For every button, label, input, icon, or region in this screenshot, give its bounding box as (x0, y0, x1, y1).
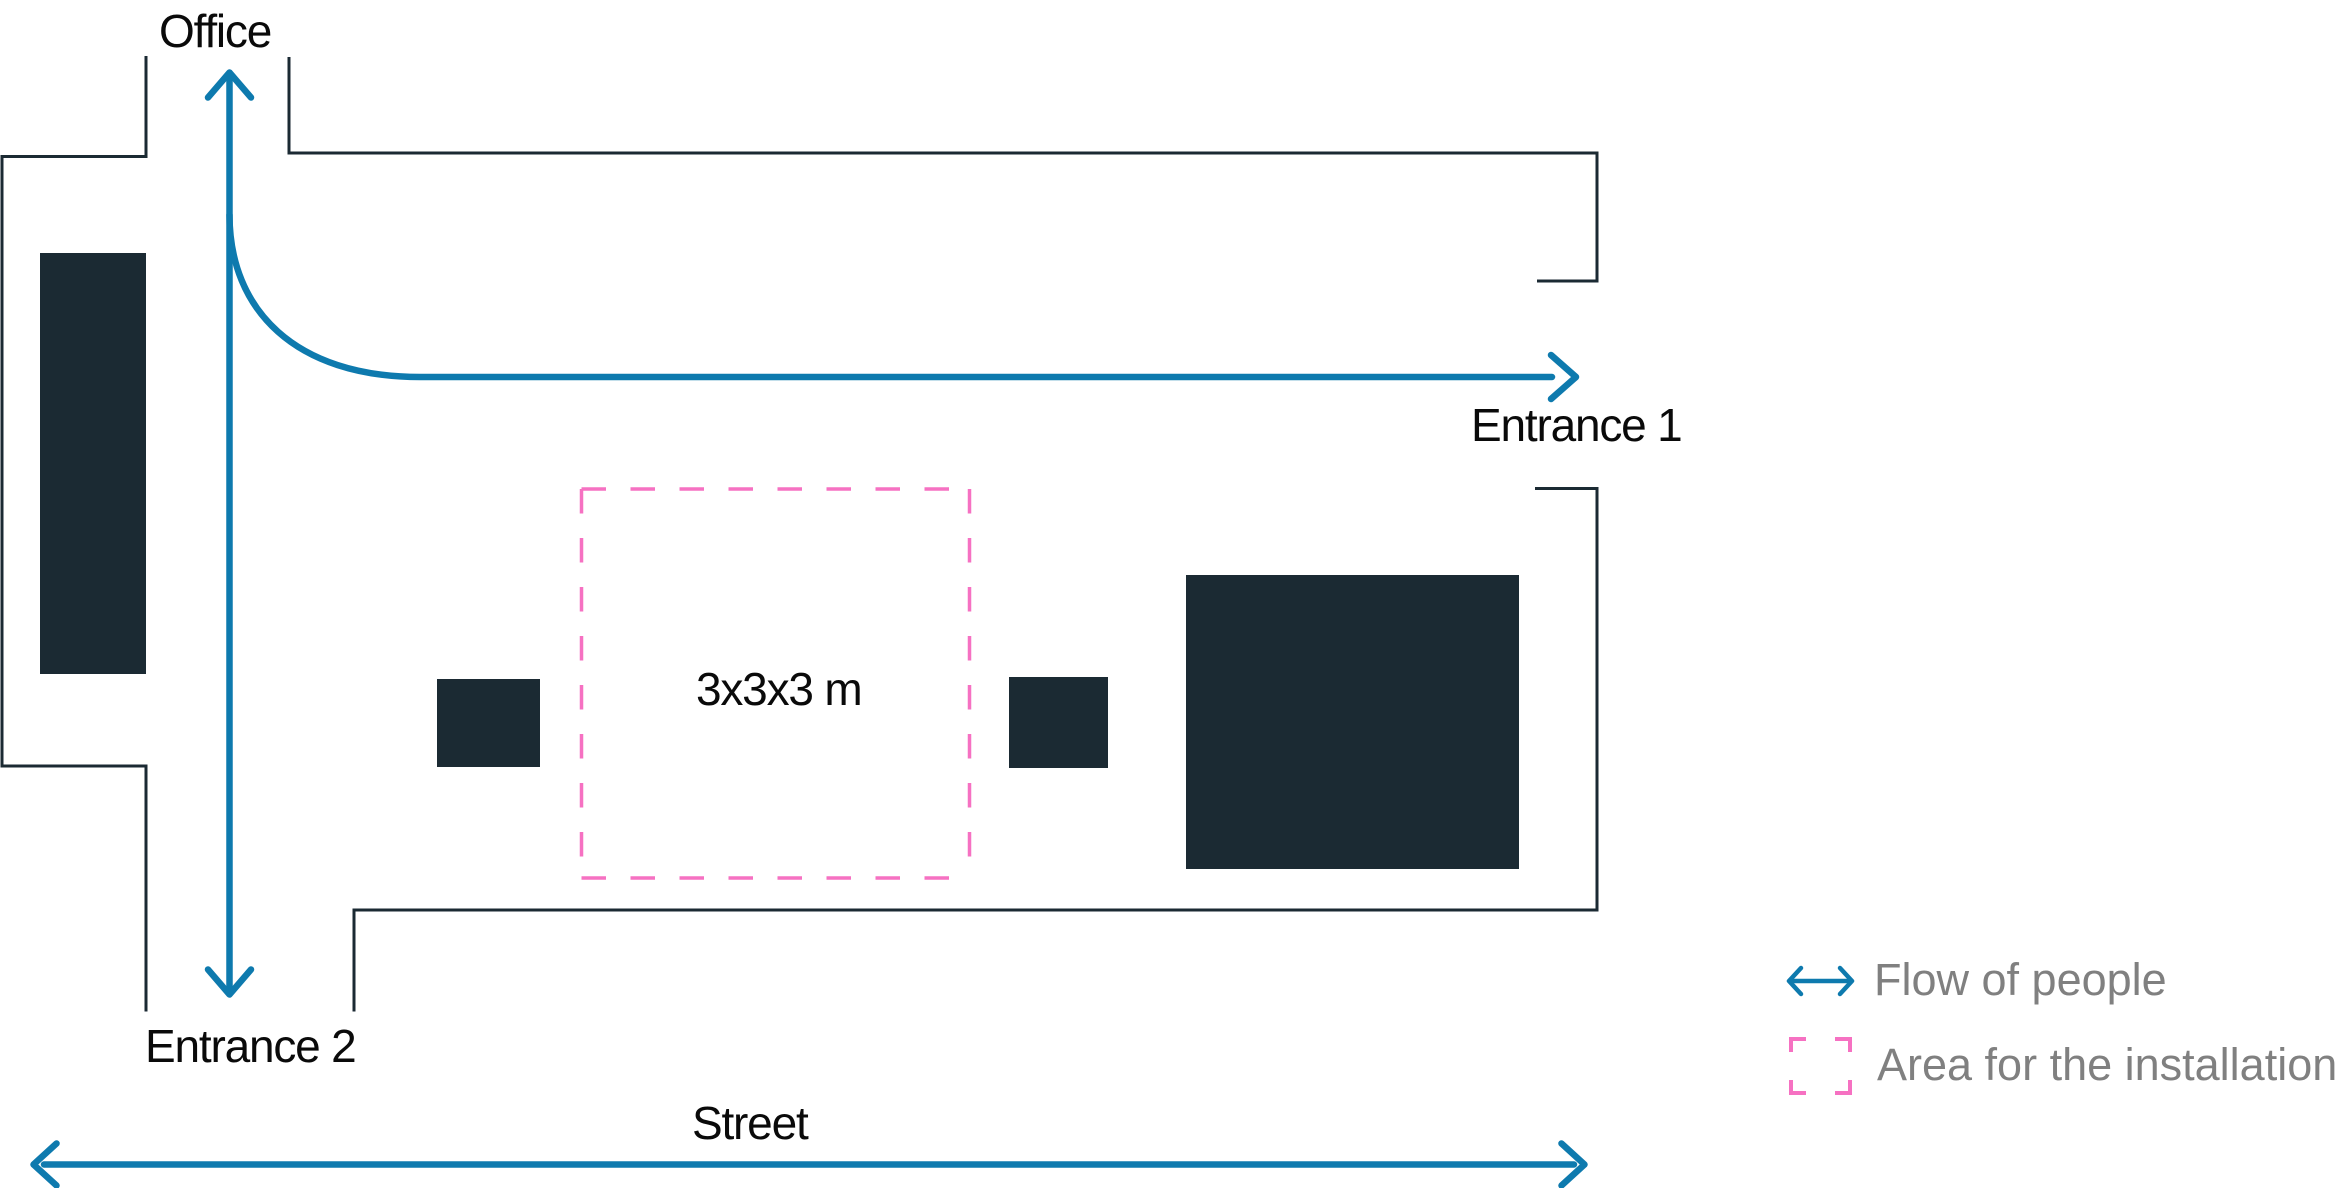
svg-text:Office: Office (159, 5, 271, 57)
svg-text:Entrance 1: Entrance 1 (1471, 399, 1681, 451)
svg-text:Entrance 2: Entrance 2 (145, 1020, 355, 1072)
svg-text:Street: Street (692, 1097, 809, 1149)
svg-text:3x3x3 m: 3x3x3 m (696, 663, 861, 715)
svg-text:Area for the installation: Area for the installation (1877, 1039, 2337, 1090)
svg-text:Flow of people: Flow of people (1874, 954, 2167, 1005)
